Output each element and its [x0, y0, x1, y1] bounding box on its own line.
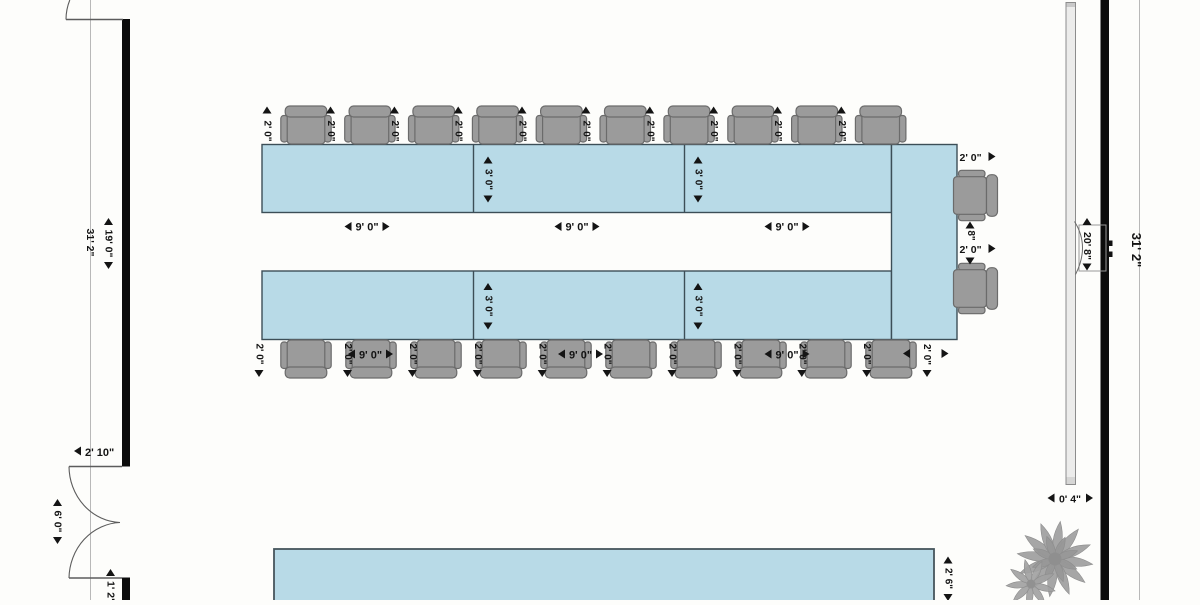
svg-text:9' 0": 9' 0": [775, 222, 798, 234]
svg-text:9' 0": 9' 0": [355, 222, 378, 234]
svg-text:6' 0": 6' 0": [52, 510, 64, 532]
svg-text:3' 0": 3' 0": [693, 295, 704, 316]
svg-text:2' 0": 2' 0": [861, 343, 872, 364]
svg-text:31' 2": 31' 2": [84, 229, 96, 257]
svg-text:2' 0": 2' 0": [325, 120, 336, 141]
svg-text:2' 0": 2' 0": [537, 343, 548, 364]
svg-text:2' 0": 2' 0": [708, 120, 719, 141]
svg-text:9' 0": 9' 0": [569, 350, 592, 362]
svg-text:2' 0": 2' 0": [772, 120, 783, 141]
svg-text:2' 0": 2' 0": [644, 120, 655, 141]
svg-text:8": 8": [965, 230, 976, 241]
svg-text:9' 0": 9' 0": [775, 350, 798, 362]
svg-text:0' 4": 0' 4": [1059, 494, 1081, 506]
svg-text:2' 0": 2' 0": [453, 120, 464, 141]
svg-text:2' 0": 2' 0": [472, 343, 483, 364]
svg-text:2' 0": 2' 0": [580, 120, 591, 141]
svg-text:1' 2": 1' 2": [105, 581, 117, 600]
svg-text:2' 10": 2' 10": [85, 447, 114, 459]
svg-text:2' 0": 2' 0": [342, 343, 353, 364]
svg-text:2' 6": 2' 6": [943, 568, 954, 589]
svg-text:9' 0": 9' 0": [359, 350, 382, 362]
svg-text:2' 0": 2' 0": [389, 120, 400, 141]
svg-text:2' 0": 2' 0": [796, 343, 807, 364]
svg-text:9' 0": 9' 0": [565, 222, 588, 234]
svg-text:2' 0": 2' 0": [960, 152, 982, 164]
svg-text:2' 0": 2' 0": [731, 343, 742, 364]
svg-text:2' 0": 2' 0": [921, 344, 932, 365]
svg-text:2' 0": 2' 0": [960, 244, 982, 256]
svg-text:3' 0": 3' 0": [693, 169, 704, 190]
svg-text:2' 0": 2' 0": [602, 343, 613, 364]
svg-text:2' 0": 2' 0": [836, 120, 847, 141]
svg-text:2' 0": 2' 0": [262, 120, 273, 141]
svg-text:31' 2": 31' 2": [1129, 233, 1144, 268]
svg-text:2' 0": 2' 0": [254, 343, 265, 364]
svg-text:2' 0": 2' 0": [407, 343, 418, 364]
svg-text:3' 0": 3' 0": [483, 169, 494, 190]
svg-text:19' 0": 19' 0": [103, 230, 115, 258]
svg-text:2' 0": 2' 0": [667, 343, 678, 364]
svg-text:2' 0": 2' 0": [517, 120, 528, 141]
svg-text:20' 8": 20' 8": [1081, 232, 1093, 260]
svg-text:3' 0": 3' 0": [483, 295, 494, 316]
